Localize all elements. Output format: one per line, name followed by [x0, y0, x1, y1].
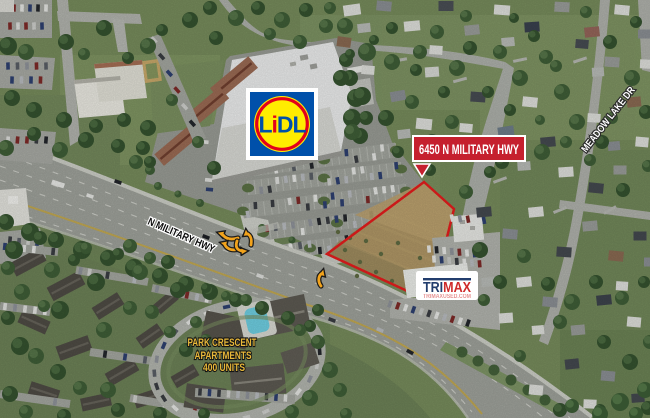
- svg-text:TRIMAXUSED.COM: TRIMAXUSED.COM: [423, 294, 471, 300]
- svg-text:400 UNITS: 400 UNITS: [203, 362, 245, 374]
- svg-text:6450 N MILITARY HWY: 6450 N MILITARY HWY: [419, 141, 519, 157]
- svg-text:LiDL: LiDL: [258, 112, 306, 138]
- svg-text:PARK CRESCENT: PARK CRESCENT: [188, 337, 257, 349]
- svg-text:APARTMENTS: APARTMENTS: [195, 350, 252, 362]
